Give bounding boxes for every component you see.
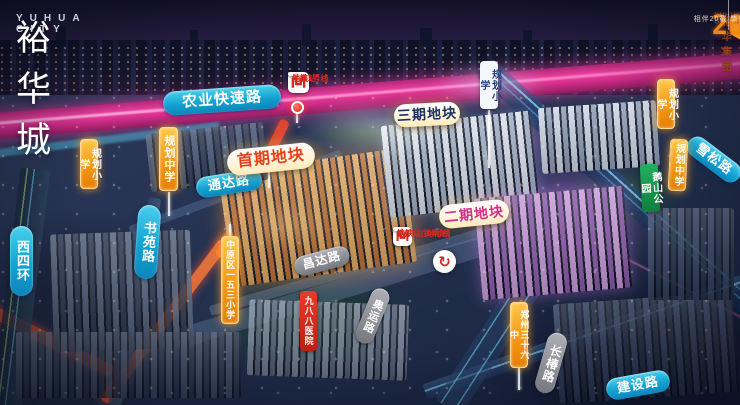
aerial-map-poster: 裕华城 YUHUA CITY 裕华集团 YUHUA GROUP 20 相伴20载… bbox=[0, 0, 740, 405]
road-label-changchun: 长椿路 bbox=[533, 330, 569, 395]
label-leader-line bbox=[488, 110, 490, 168]
phase-label-second: 二期地块 bbox=[438, 198, 510, 229]
place-label-zhengzhou-36-middle: 郑州三十六中 bbox=[510, 302, 528, 368]
phase-label-first: 首期地块 bbox=[226, 141, 316, 176]
place-label-planned-primary-white: 规划小学 bbox=[480, 61, 498, 109]
label-leader-line bbox=[168, 192, 170, 216]
label-leader-line bbox=[518, 368, 520, 390]
station-pin bbox=[291, 101, 304, 114]
road-label-aoyun: 奥运路 bbox=[353, 286, 392, 347]
place-label-988-hospital: 九八八医院 bbox=[300, 291, 317, 351]
project-title-en: YUHUA CITY bbox=[16, 13, 86, 35]
place-label-153-primary: 中原区一五三小学 bbox=[221, 236, 239, 324]
metro-station-text: 铁炉站(换乘站) bbox=[397, 229, 450, 239]
road-label-jianshe: 建设路 bbox=[605, 369, 672, 402]
place-label-planned-middle-west: 规划中学 bbox=[159, 127, 178, 191]
anniversary-tagline: 相伴20载 筑就未来 bbox=[694, 14, 740, 24]
place-label-planned-primary-east: 规划小学 bbox=[657, 79, 675, 129]
phase-label-third: 三期地块 bbox=[393, 101, 460, 127]
road-label-changda: 昌达路 bbox=[292, 244, 351, 278]
interchange-icon: ↻ bbox=[433, 250, 456, 273]
label-leader-line bbox=[229, 224, 231, 236]
place-label-planned-primary-west: 规划小学 bbox=[80, 139, 98, 189]
label-leader-line bbox=[296, 114, 298, 123]
road-label-xisihuan: 西四环 bbox=[10, 226, 33, 296]
road-label-shuyuan: 书苑路 bbox=[133, 204, 161, 279]
interchange-glyph: ↻ bbox=[438, 253, 451, 271]
road-label-xuesong: 雪松路 bbox=[683, 132, 740, 186]
map-labels-layer: 农业快速路通达路书苑路西四环雪松路建设路昌达路奥运路长椿路九八八医院规划小学规划… bbox=[0, 0, 740, 405]
road-label-nongye-expressway: 农业快速路 bbox=[162, 84, 281, 116]
metro-station-label: 地铁1号线 兰寨站 bbox=[288, 72, 296, 76]
metro-station-label: 地铁1、14号线 铁炉站(换乘站) bbox=[393, 227, 401, 231]
place-label-planned-middle-east: 规划中学 bbox=[668, 139, 689, 192]
label-leader-line bbox=[268, 172, 270, 188]
metro-station-text: 兰寨站 bbox=[292, 74, 316, 84]
place-label-eshan-park: 鹅山公园 bbox=[640, 164, 660, 213]
